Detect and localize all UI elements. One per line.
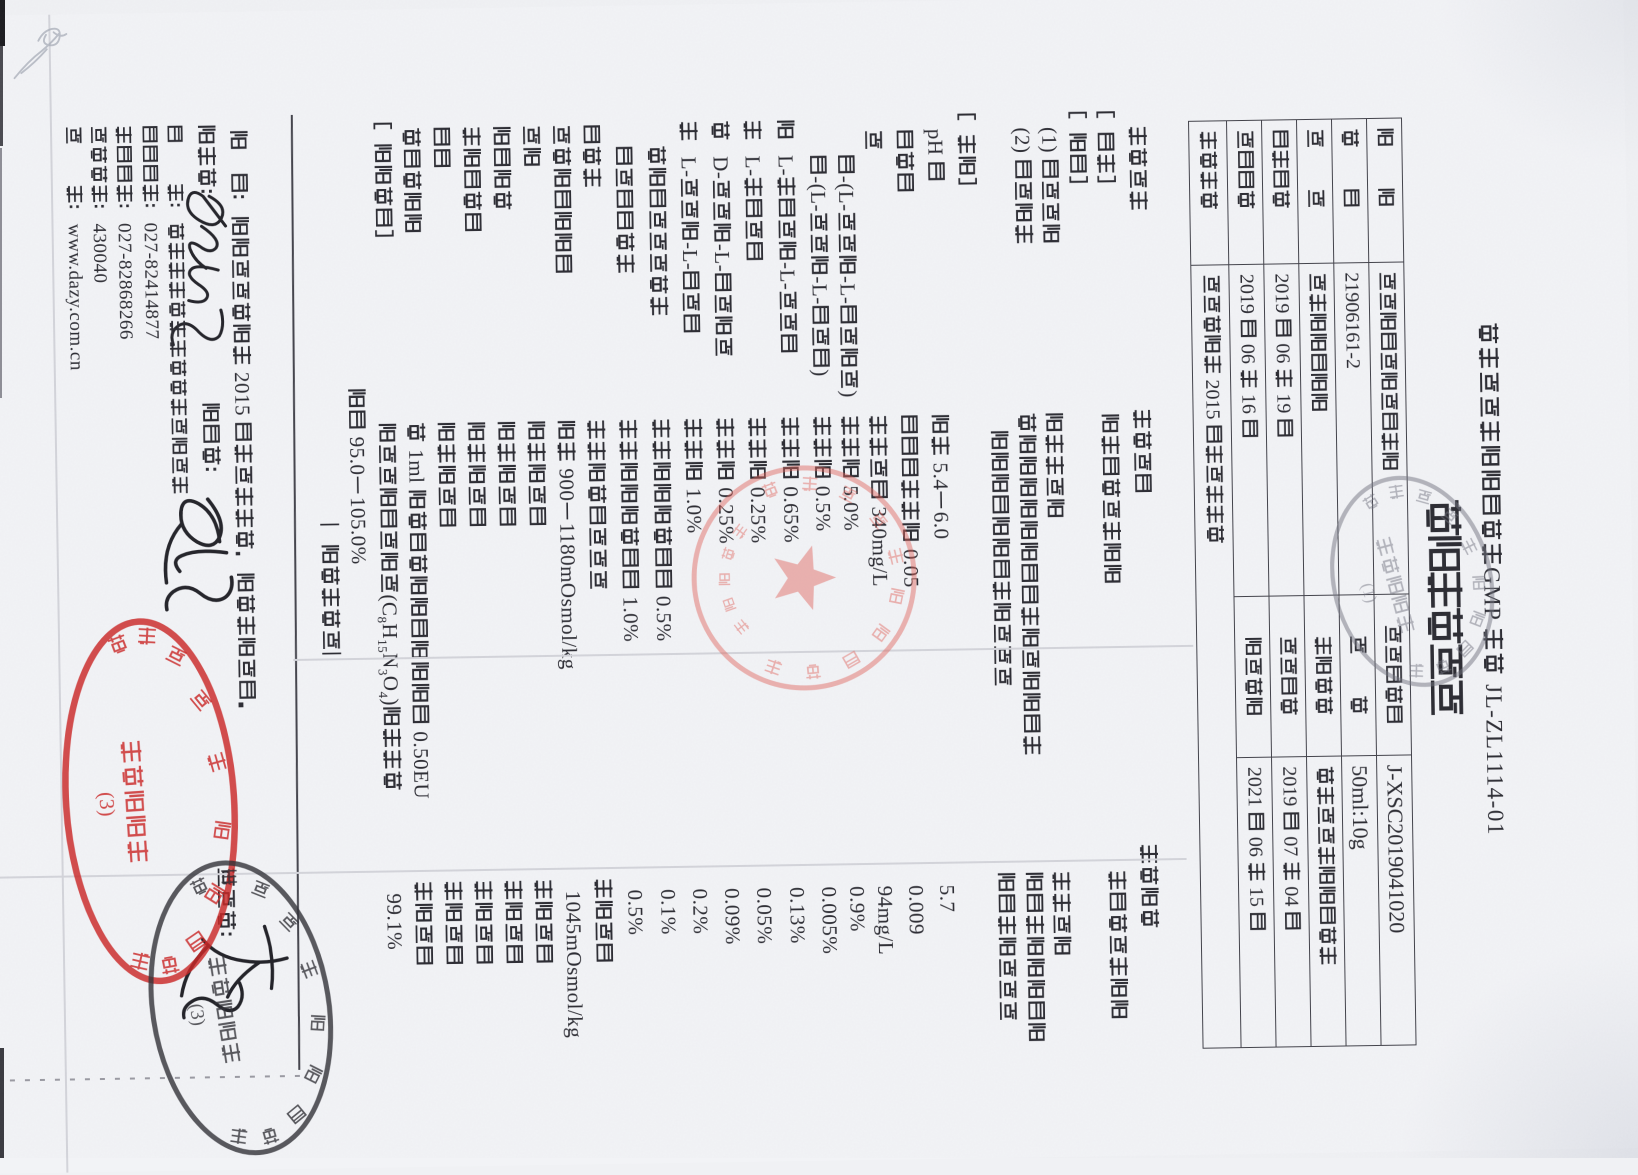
svg-text:检: 检: [731, 522, 751, 542]
svg-text:汉: 汉: [1388, 484, 1406, 502]
svg-text:限: 限: [839, 647, 862, 670]
svg-text:汉: 汉: [137, 627, 158, 648]
svg-text:司: 司: [229, 1125, 249, 1145]
svg-text:安: 安: [866, 510, 890, 534]
svg-text:司: 司: [763, 655, 785, 677]
svg-text:有: 有: [867, 620, 891, 644]
svg-text:检验专用章: 检验专用章: [1372, 535, 1416, 637]
svg-text:药: 药: [1469, 575, 1486, 592]
svg-text:制: 制: [296, 958, 319, 981]
svg-text:大: 大: [249, 879, 272, 902]
svg-text:制: 制: [884, 547, 904, 567]
svg-text:(3): (3): [185, 1002, 209, 1027]
svg-text:武: 武: [1361, 492, 1383, 514]
svg-text:(1): (1): [1358, 581, 1381, 605]
svg-text:药: 药: [209, 819, 232, 842]
svg-text:限: 限: [1452, 636, 1475, 659]
svg-text:司: 司: [1408, 661, 1425, 678]
svg-text:专: 专: [719, 572, 733, 586]
svg-text:大: 大: [836, 485, 859, 508]
svg-text:公: 公: [1432, 655, 1453, 676]
svg-text:公: 公: [258, 1124, 280, 1146]
svg-text:药: 药: [885, 586, 905, 606]
svg-text:武: 武: [760, 480, 782, 502]
svg-text:制: 制: [204, 750, 229, 775]
svg-text:(3): (3): [94, 791, 120, 817]
svg-text:验: 验: [721, 545, 739, 563]
svg-text:汉: 汉: [220, 869, 239, 888]
svg-text:用: 用: [721, 595, 739, 613]
svg-text:有: 有: [300, 1062, 324, 1086]
svg-text:药: 药: [307, 1014, 326, 1033]
svg-text:安: 安: [1437, 506, 1460, 529]
svg-text:有: 有: [1465, 608, 1486, 629]
svg-text:检验专用章: 检验专用章: [117, 739, 149, 865]
svg-text:公: 公: [804, 661, 822, 679]
svg-text:武: 武: [188, 876, 212, 900]
svg-text:大: 大: [1414, 488, 1434, 509]
svg-text:汉: 汉: [801, 476, 819, 494]
svg-text:章: 章: [732, 616, 752, 636]
svg-text:制: 制: [1457, 537, 1479, 559]
svg-text:检验专用章: 检验专用章: [204, 955, 242, 1067]
